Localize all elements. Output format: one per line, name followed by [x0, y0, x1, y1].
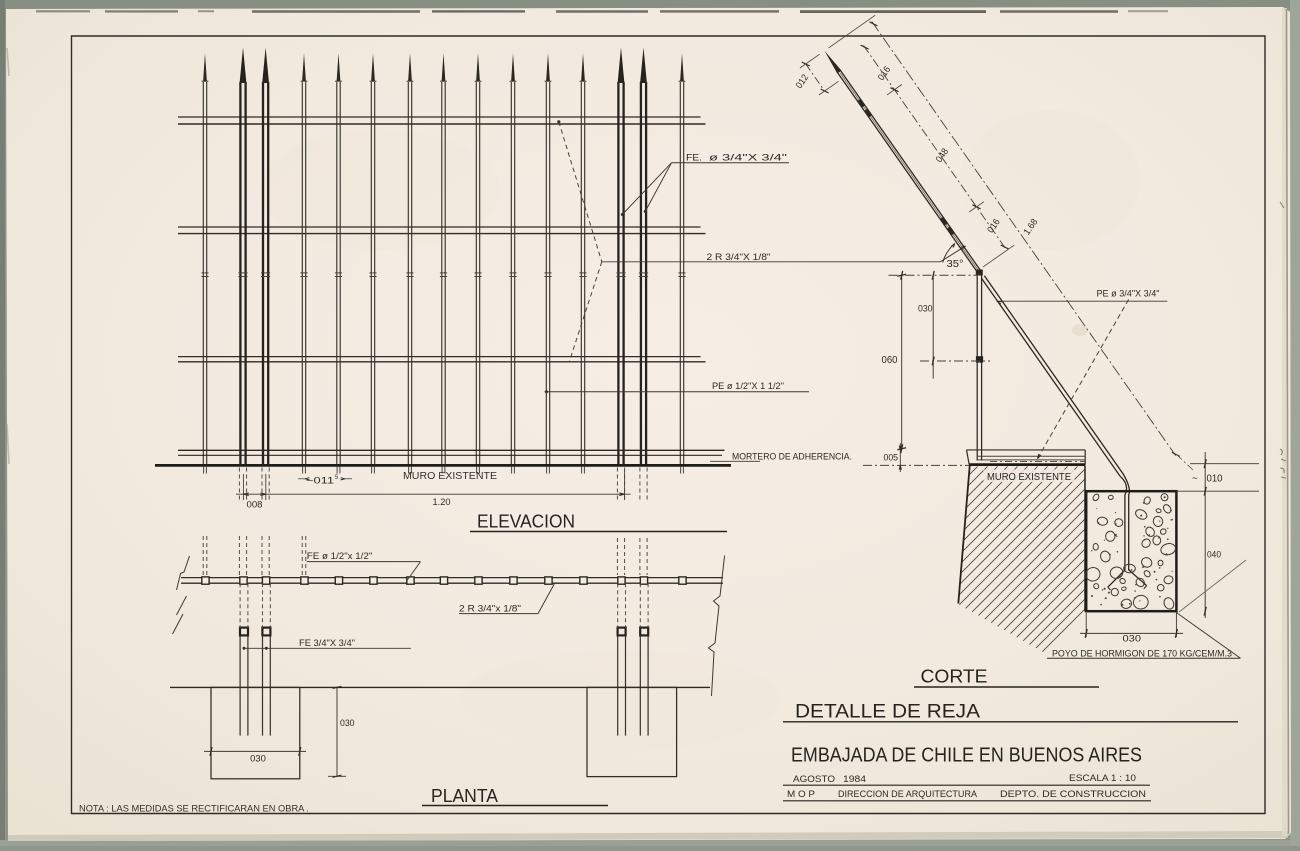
svg-text:DEPTO. DE CONSTRUCCION: DEPTO. DE CONSTRUCCION — [1000, 789, 1146, 799]
svg-text:1.20: 1.20 — [433, 497, 451, 508]
svg-text:ESCALA 1 : 10: ESCALA 1 : 10 — [1069, 773, 1136, 784]
svg-text:030: 030 — [1123, 633, 1142, 644]
svg-text:030: 030 — [340, 718, 355, 729]
svg-text:FE 3/4"X 3/4": FE 3/4"X 3/4" — [299, 637, 355, 648]
svg-text:2 R 3/4"X 1/8": 2 R 3/4"X 1/8" — [707, 251, 771, 262]
svg-text:FE.: FE. — [686, 152, 702, 163]
svg-text:010: 010 — [1207, 474, 1224, 485]
svg-text:M O P: M O P — [787, 789, 815, 799]
svg-text:35°: 35° — [947, 259, 964, 270]
svg-text:060: 060 — [882, 355, 899, 366]
svg-text:PLANTA: PLANTA — [431, 786, 498, 806]
svg-text:DIRECCION DE ARQUITECTURA: DIRECCION DE ARQUITECTURA — [838, 789, 978, 799]
svg-text:030: 030 — [250, 754, 266, 765]
svg-text:MORTERO DE ADHERENCIA.: MORTERO DE ADHERENCIA. — [732, 450, 852, 461]
svg-text:POYO DE HORMIGON DE 170 KG/CEM: POYO DE HORMIGON DE 170 KG/CEM/M.3 — [1052, 648, 1232, 658]
svg-text:DETALLE DE REJA: DETALLE DE REJA — [795, 701, 980, 723]
svg-text:ø 3/4"X 3/4": ø 3/4"X 3/4" — [709, 152, 787, 163]
svg-text:AGOSTO: AGOSTO — [793, 774, 835, 785]
svg-text:FE ø 1/2"x 1/2": FE ø 1/2"x 1/2" — [307, 550, 373, 561]
svg-text:NOTA : LAS MEDIDAS SE RECTIFIC: NOTA : LAS MEDIDAS SE RECTIFICARAN EN OB… — [79, 802, 309, 813]
svg-text:030: 030 — [918, 304, 933, 315]
svg-text:MURO EXISTENTE: MURO EXISTENTE — [987, 472, 1071, 483]
svg-text:1984: 1984 — [843, 774, 867, 785]
svg-text:CORTE: CORTE — [921, 666, 988, 687]
svg-text:040: 040 — [1207, 550, 1221, 561]
svg-text:ELEVACION: ELEVACION — [477, 511, 575, 532]
svg-text:005: 005 — [884, 453, 899, 464]
svg-text:PE ø 1/2"X 1 1/2": PE ø 1/2"X 1 1/2" — [712, 380, 784, 391]
svg-text:PE ø 3/4"X 3/4": PE ø 3/4"X 3/4" — [1097, 288, 1160, 299]
svg-text:~011: ~011 — [306, 475, 334, 486]
svg-text:~: ~ — [1192, 474, 1198, 485]
svg-text:2 R 3/4"x 1/8": 2 R 3/4"x 1/8" — [459, 602, 521, 613]
svg-text:008: 008 — [247, 500, 263, 511]
svg-text:EMBAJADA DE CHILE EN BUENOS AI: EMBAJADA DE CHILE EN BUENOS AIRES — [791, 745, 1142, 767]
svg-text:MURO EXISTENTE: MURO EXISTENTE — [403, 471, 497, 482]
